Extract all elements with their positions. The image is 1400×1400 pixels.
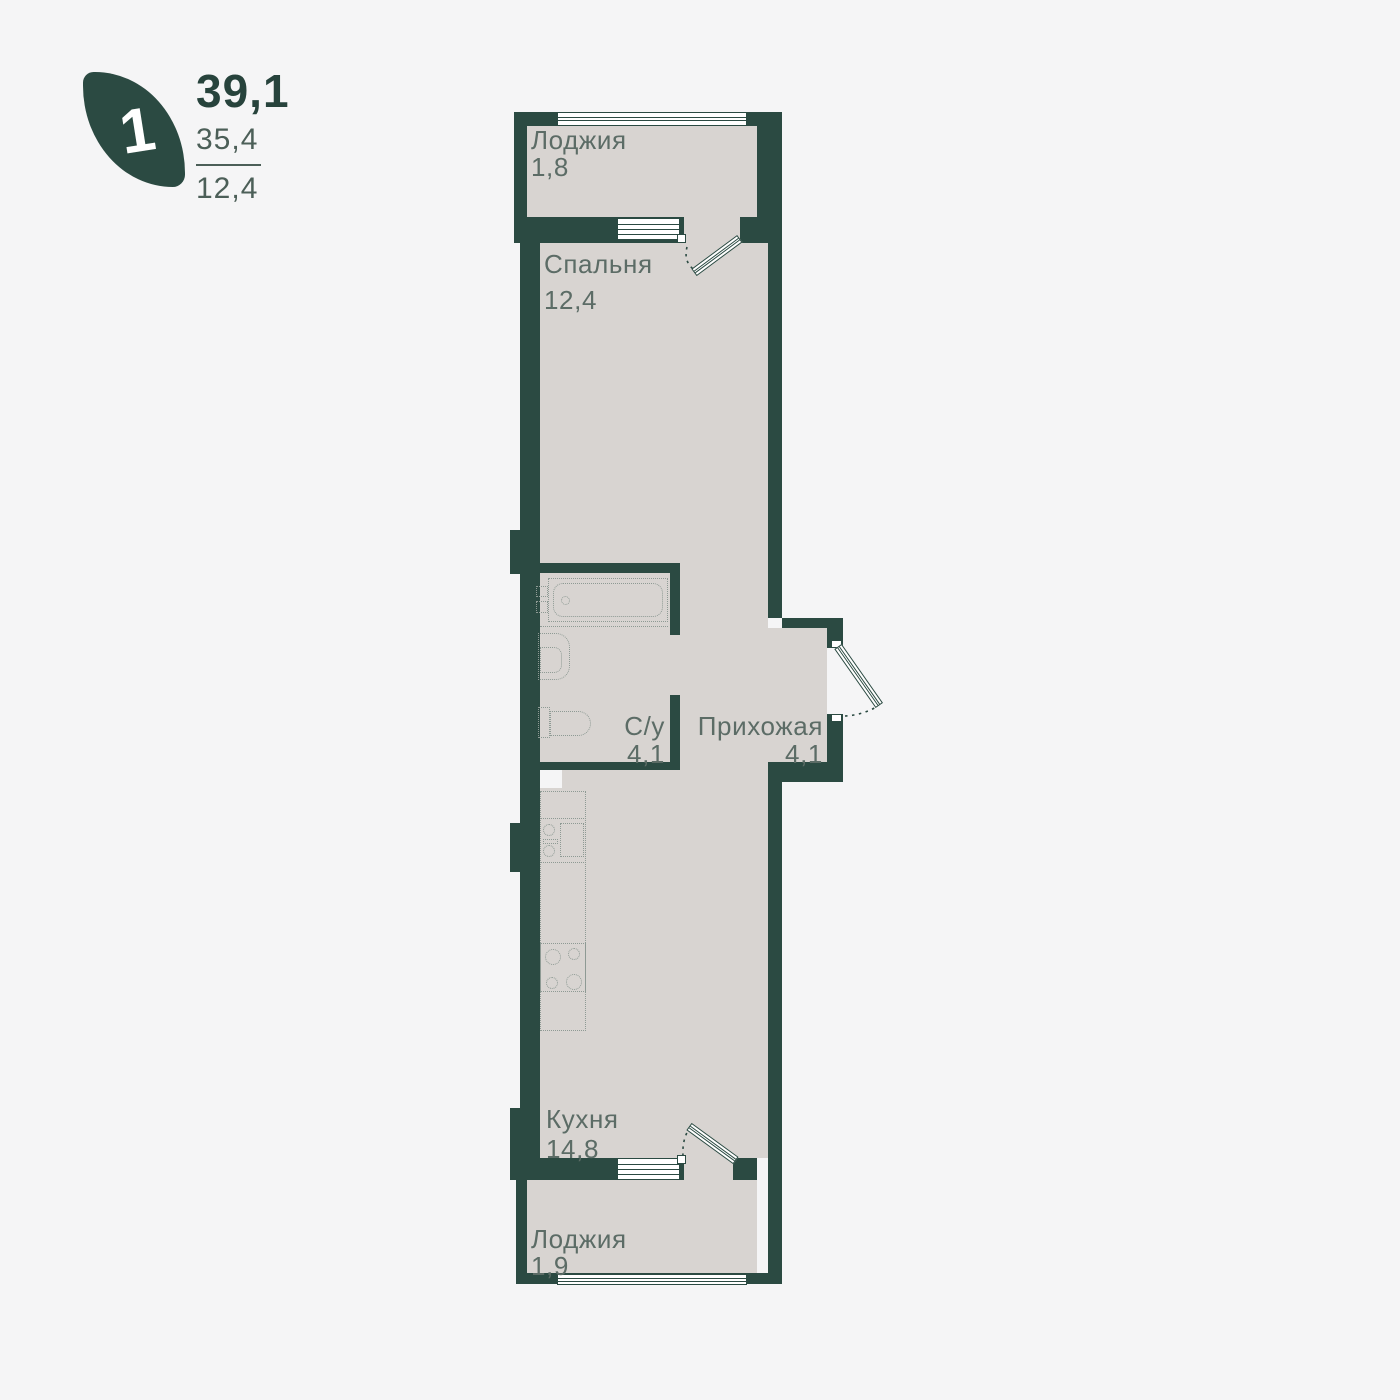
door-leaf-entry bbox=[834, 644, 883, 708]
wall bbox=[670, 573, 680, 635]
door-swing-arc bbox=[845, 706, 878, 716]
floor-plan-page: 1 39,1 35,4 12,4 bbox=[0, 0, 1400, 1400]
kitchen-door-opening bbox=[684, 1158, 733, 1180]
stove-burner bbox=[568, 948, 580, 960]
window bbox=[557, 112, 747, 126]
room-name: Лоджия bbox=[531, 127, 627, 154]
room-name: Кухня bbox=[546, 1104, 619, 1134]
duct-shaft bbox=[540, 770, 562, 788]
window-line bbox=[618, 224, 679, 225]
room-label-bedroom: Спальня 12,4 bbox=[544, 246, 653, 318]
room-label-kitchen: Кухня 14,8 bbox=[546, 1104, 619, 1164]
bathtub-faucet bbox=[536, 601, 548, 613]
stove-burner bbox=[545, 949, 561, 965]
window-line bbox=[618, 1164, 679, 1165]
balcony-window-bedroom bbox=[617, 218, 680, 240]
window-line bbox=[618, 1174, 679, 1175]
bathtub-faucet bbox=[536, 586, 548, 597]
room-area: 4,1 bbox=[683, 740, 823, 768]
entry-bump-wall bbox=[782, 618, 843, 628]
room-area: 14,8 bbox=[546, 1134, 619, 1164]
total-area-value: 39,1 bbox=[196, 68, 290, 114]
room-name: Лоджия bbox=[531, 1226, 627, 1253]
room-label-bathroom: С/у 4,1 bbox=[565, 712, 665, 768]
wall bbox=[520, 243, 540, 1180]
door-hinge-block bbox=[677, 234, 686, 243]
door-hinge-block bbox=[677, 1155, 686, 1164]
room-name: С/у bbox=[565, 712, 665, 740]
room-label-hallway: Прихожая 4,1 bbox=[683, 712, 823, 768]
kitchen-faucet bbox=[543, 824, 555, 836]
bathroom-door-opening bbox=[670, 635, 680, 695]
area-summary: 39,1 35,4 12,4 bbox=[196, 68, 290, 204]
wall bbox=[768, 762, 782, 1284]
room-name: Спальня bbox=[544, 246, 653, 282]
wall bbox=[670, 695, 680, 762]
living-area-value: 35,4 bbox=[196, 125, 261, 166]
wall-pilaster bbox=[510, 823, 520, 872]
toilet-tank bbox=[538, 707, 550, 738]
entry-door-frame bbox=[831, 714, 842, 722]
wall-pilaster bbox=[510, 530, 520, 574]
washbasin-inner bbox=[540, 647, 562, 673]
room-label-loggia-bottom: Лоджия 1,9 bbox=[531, 1226, 627, 1280]
room-area-value: 12,4 bbox=[196, 174, 290, 204]
bathtub-edge-line bbox=[540, 626, 668, 627]
balcony-window-kitchen bbox=[617, 1158, 680, 1180]
leaf-logo-icon: 1 bbox=[83, 72, 185, 187]
window-line bbox=[618, 229, 679, 230]
window-line bbox=[618, 1169, 679, 1170]
room-area: 4,1 bbox=[565, 740, 665, 768]
wall bbox=[768, 243, 782, 618]
kitchen-sink-basin bbox=[560, 823, 584, 857]
room-label-loggia-top: Лоджия 1,8 bbox=[531, 127, 627, 181]
wall bbox=[516, 1180, 527, 1284]
room-area: 1,8 bbox=[531, 154, 627, 181]
window-line bbox=[558, 117, 746, 118]
room-name: Прихожая bbox=[683, 712, 823, 740]
stove-burner bbox=[546, 977, 558, 989]
room-area: 1,9 bbox=[531, 1253, 627, 1280]
kitchen-faucet bbox=[543, 845, 555, 857]
window-line bbox=[558, 1281, 746, 1282]
window-line bbox=[558, 120, 746, 121]
wall bbox=[540, 563, 680, 573]
room-area: 12,4 bbox=[544, 282, 653, 318]
wall-pilaster bbox=[510, 1108, 520, 1180]
rooms-count-badge: 1 bbox=[115, 98, 159, 165]
window-line bbox=[618, 234, 679, 235]
stove-burner bbox=[566, 974, 582, 990]
kitchen-sink-detail bbox=[543, 839, 558, 844]
bathtub-drain bbox=[561, 596, 570, 605]
